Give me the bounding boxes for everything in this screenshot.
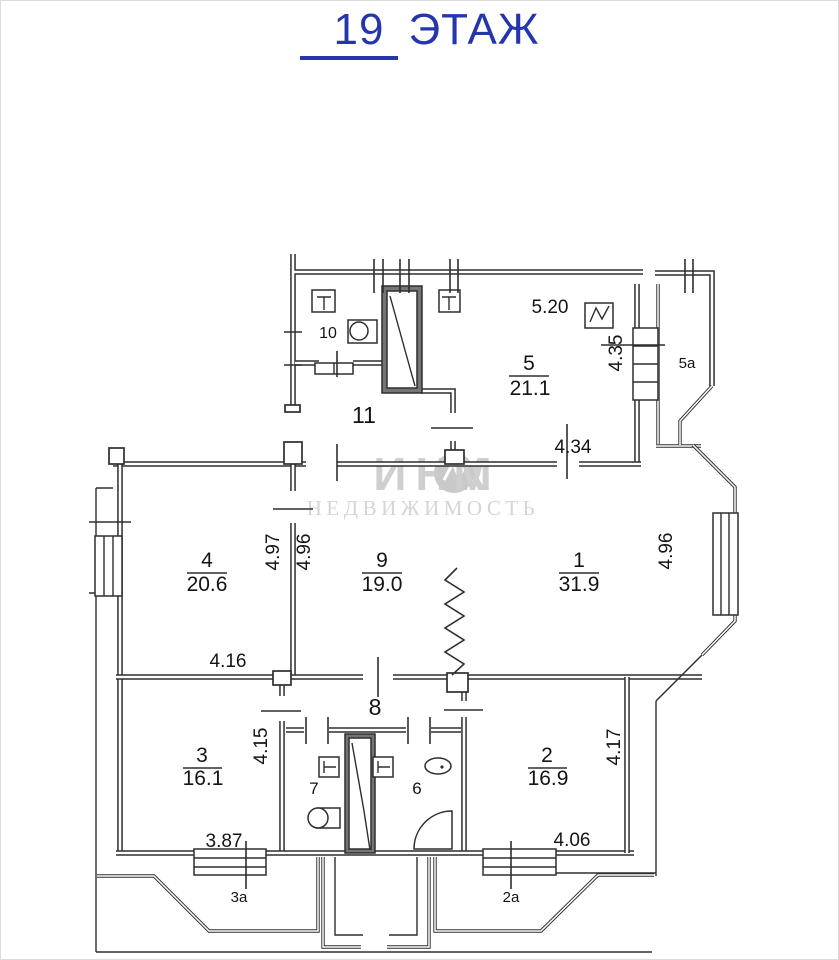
room-7-number: 7 [309, 779, 318, 798]
dim-497: 4.97 [263, 534, 284, 571]
room-8-number: 8 [369, 694, 382, 720]
window-room4-left [95, 536, 122, 596]
entry-door-sill [285, 405, 300, 412]
sink-room10-icon [348, 320, 377, 343]
room-5-number: 5 [523, 352, 535, 375]
dim-387: 3.87 [206, 831, 243, 852]
dim-496-left: 4.96 [294, 534, 315, 571]
dim-435: 4.35 [606, 335, 627, 372]
dim-406: 4.06 [554, 830, 591, 851]
watermark: ИНК М НЕДВИЖИМОСТЬ [307, 448, 539, 520]
room-1-area: 31.9 [559, 573, 600, 596]
electric-panel-icon [312, 290, 335, 312]
balcony-5a-label: 5а [679, 355, 696, 372]
shaft-lower [345, 734, 375, 853]
towel-rail-icon [319, 757, 339, 777]
towel-rail-icon [373, 757, 393, 777]
vent-icon [585, 303, 613, 328]
sink-room6-icon [425, 758, 451, 774]
room-9-number: 9 [376, 549, 388, 572]
window-room2-bottom [483, 849, 556, 875]
window-room3-bottom [194, 849, 266, 875]
room-4-number: 4 [201, 549, 213, 572]
dim-415: 4.15 [251, 728, 272, 765]
balcony-3a-label: 3а [231, 889, 248, 906]
room-5-area: 21.1 [510, 377, 551, 400]
room-2-number: 2 [541, 744, 553, 767]
window-room5-balcony [633, 328, 658, 400]
window-bay-right [713, 513, 738, 615]
room-6-number: 6 [412, 779, 421, 798]
room-4-area: 20.6 [187, 573, 228, 596]
room-11-number: 11 [352, 402, 376, 428]
dim-416: 4.16 [210, 651, 247, 672]
room-10-number: 10 [319, 325, 337, 342]
dim-434: 4.34 [555, 437, 592, 458]
core-protrusion-walls [323, 857, 429, 947]
room-3-area: 16.1 [183, 767, 224, 790]
room-2-area: 16.9 [528, 767, 569, 790]
shaft-upper [382, 286, 422, 393]
balcony-2a-label: 2а [503, 889, 520, 906]
watermark-subtitle: НЕДВИЖИМОСТЬ [307, 496, 539, 520]
room-3-number: 3 [196, 744, 208, 767]
room-1-number: 1 [573, 549, 585, 572]
electric-panel-icon [439, 290, 460, 312]
toilet-icon [308, 808, 340, 828]
floor-plan: ИНК М НЕДВИЖИМОСТЬ [1, 1, 839, 960]
door-swing-arc [414, 811, 452, 849]
facade-lines [89, 488, 702, 952]
dim-496-right: 4.96 [656, 533, 677, 570]
zigzag-partition [445, 568, 464, 675]
sill-cabinet [315, 363, 353, 374]
room-9-area: 19.0 [362, 573, 403, 596]
floor-plan-page: 19ЭТАЖ ИНК М [0, 0, 839, 960]
dim-520: 5.20 [532, 297, 569, 318]
dim-417: 4.17 [604, 729, 625, 766]
